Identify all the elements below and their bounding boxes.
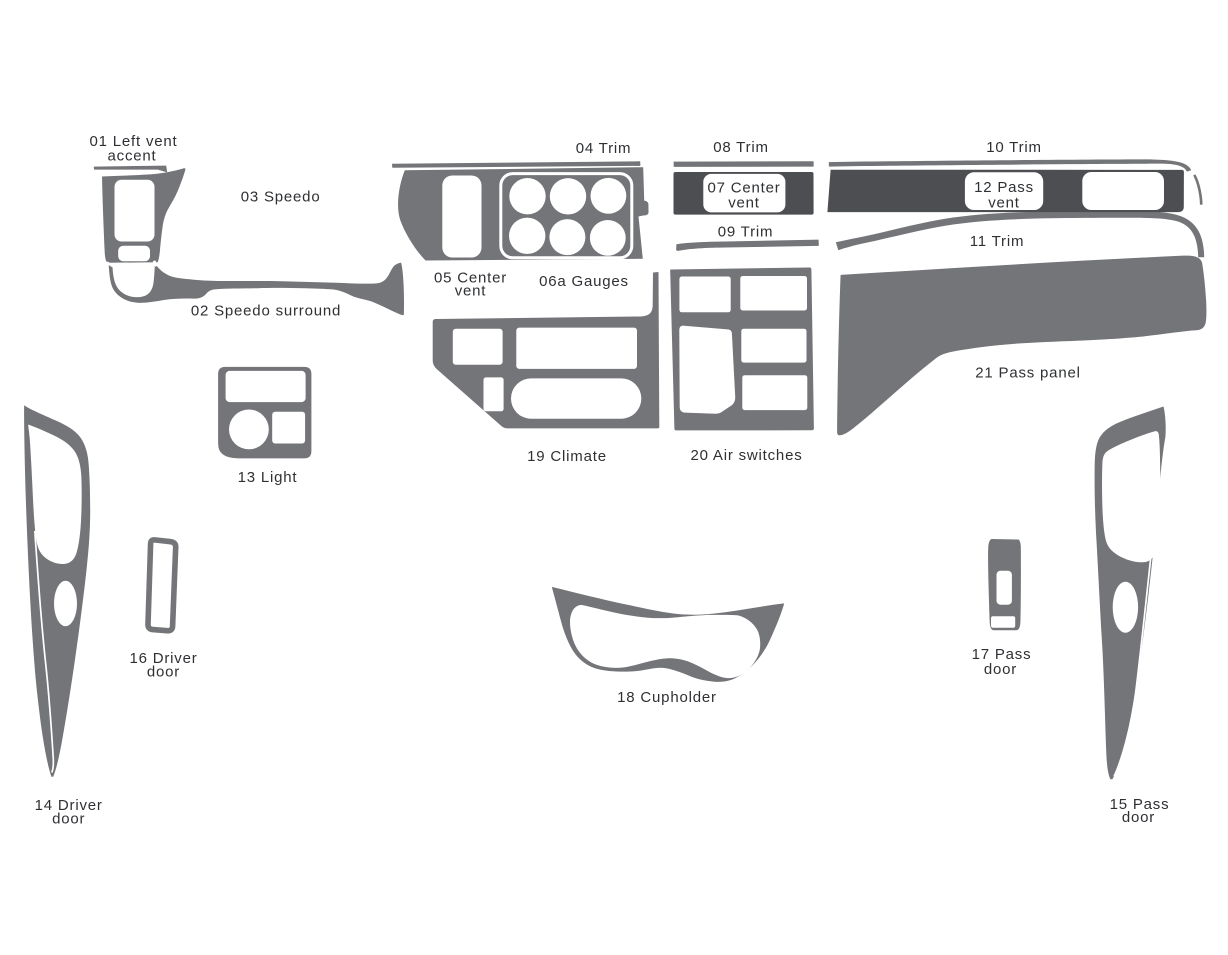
svg-text:door: door bbox=[1122, 809, 1155, 826]
svg-text:18 Cupholder: 18 Cupholder bbox=[617, 689, 717, 706]
svg-text:19 Climate: 19 Climate bbox=[527, 448, 607, 465]
svg-text:door: door bbox=[147, 664, 180, 681]
svg-text:21 Pass panel: 21 Pass panel bbox=[975, 365, 1080, 382]
svg-text:02 Speedo surround: 02 Speedo surround bbox=[191, 303, 341, 320]
svg-text:vent: vent bbox=[455, 283, 487, 300]
svg-text:12 Pass: 12 Pass bbox=[974, 179, 1034, 196]
svg-text:door: door bbox=[52, 811, 85, 828]
svg-text:13 Light: 13 Light bbox=[238, 469, 298, 486]
svg-text:04 Trim: 04 Trim bbox=[576, 140, 632, 157]
svg-text:vent: vent bbox=[728, 195, 760, 212]
svg-text:06a Gauges: 06a Gauges bbox=[539, 273, 629, 290]
svg-text:20 Air switches: 20 Air switches bbox=[690, 447, 802, 464]
svg-text:accent: accent bbox=[108, 148, 157, 165]
svg-text:11 Trim: 11 Trim bbox=[970, 233, 1025, 250]
svg-text:03 Speedo: 03 Speedo bbox=[241, 189, 321, 206]
svg-text:08 Trim: 08 Trim bbox=[713, 139, 769, 156]
svg-text:09 Trim: 09 Trim bbox=[718, 224, 774, 241]
svg-text:door: door bbox=[984, 661, 1017, 678]
svg-text:10 Trim: 10 Trim bbox=[986, 139, 1042, 156]
svg-text:vent: vent bbox=[988, 195, 1020, 212]
